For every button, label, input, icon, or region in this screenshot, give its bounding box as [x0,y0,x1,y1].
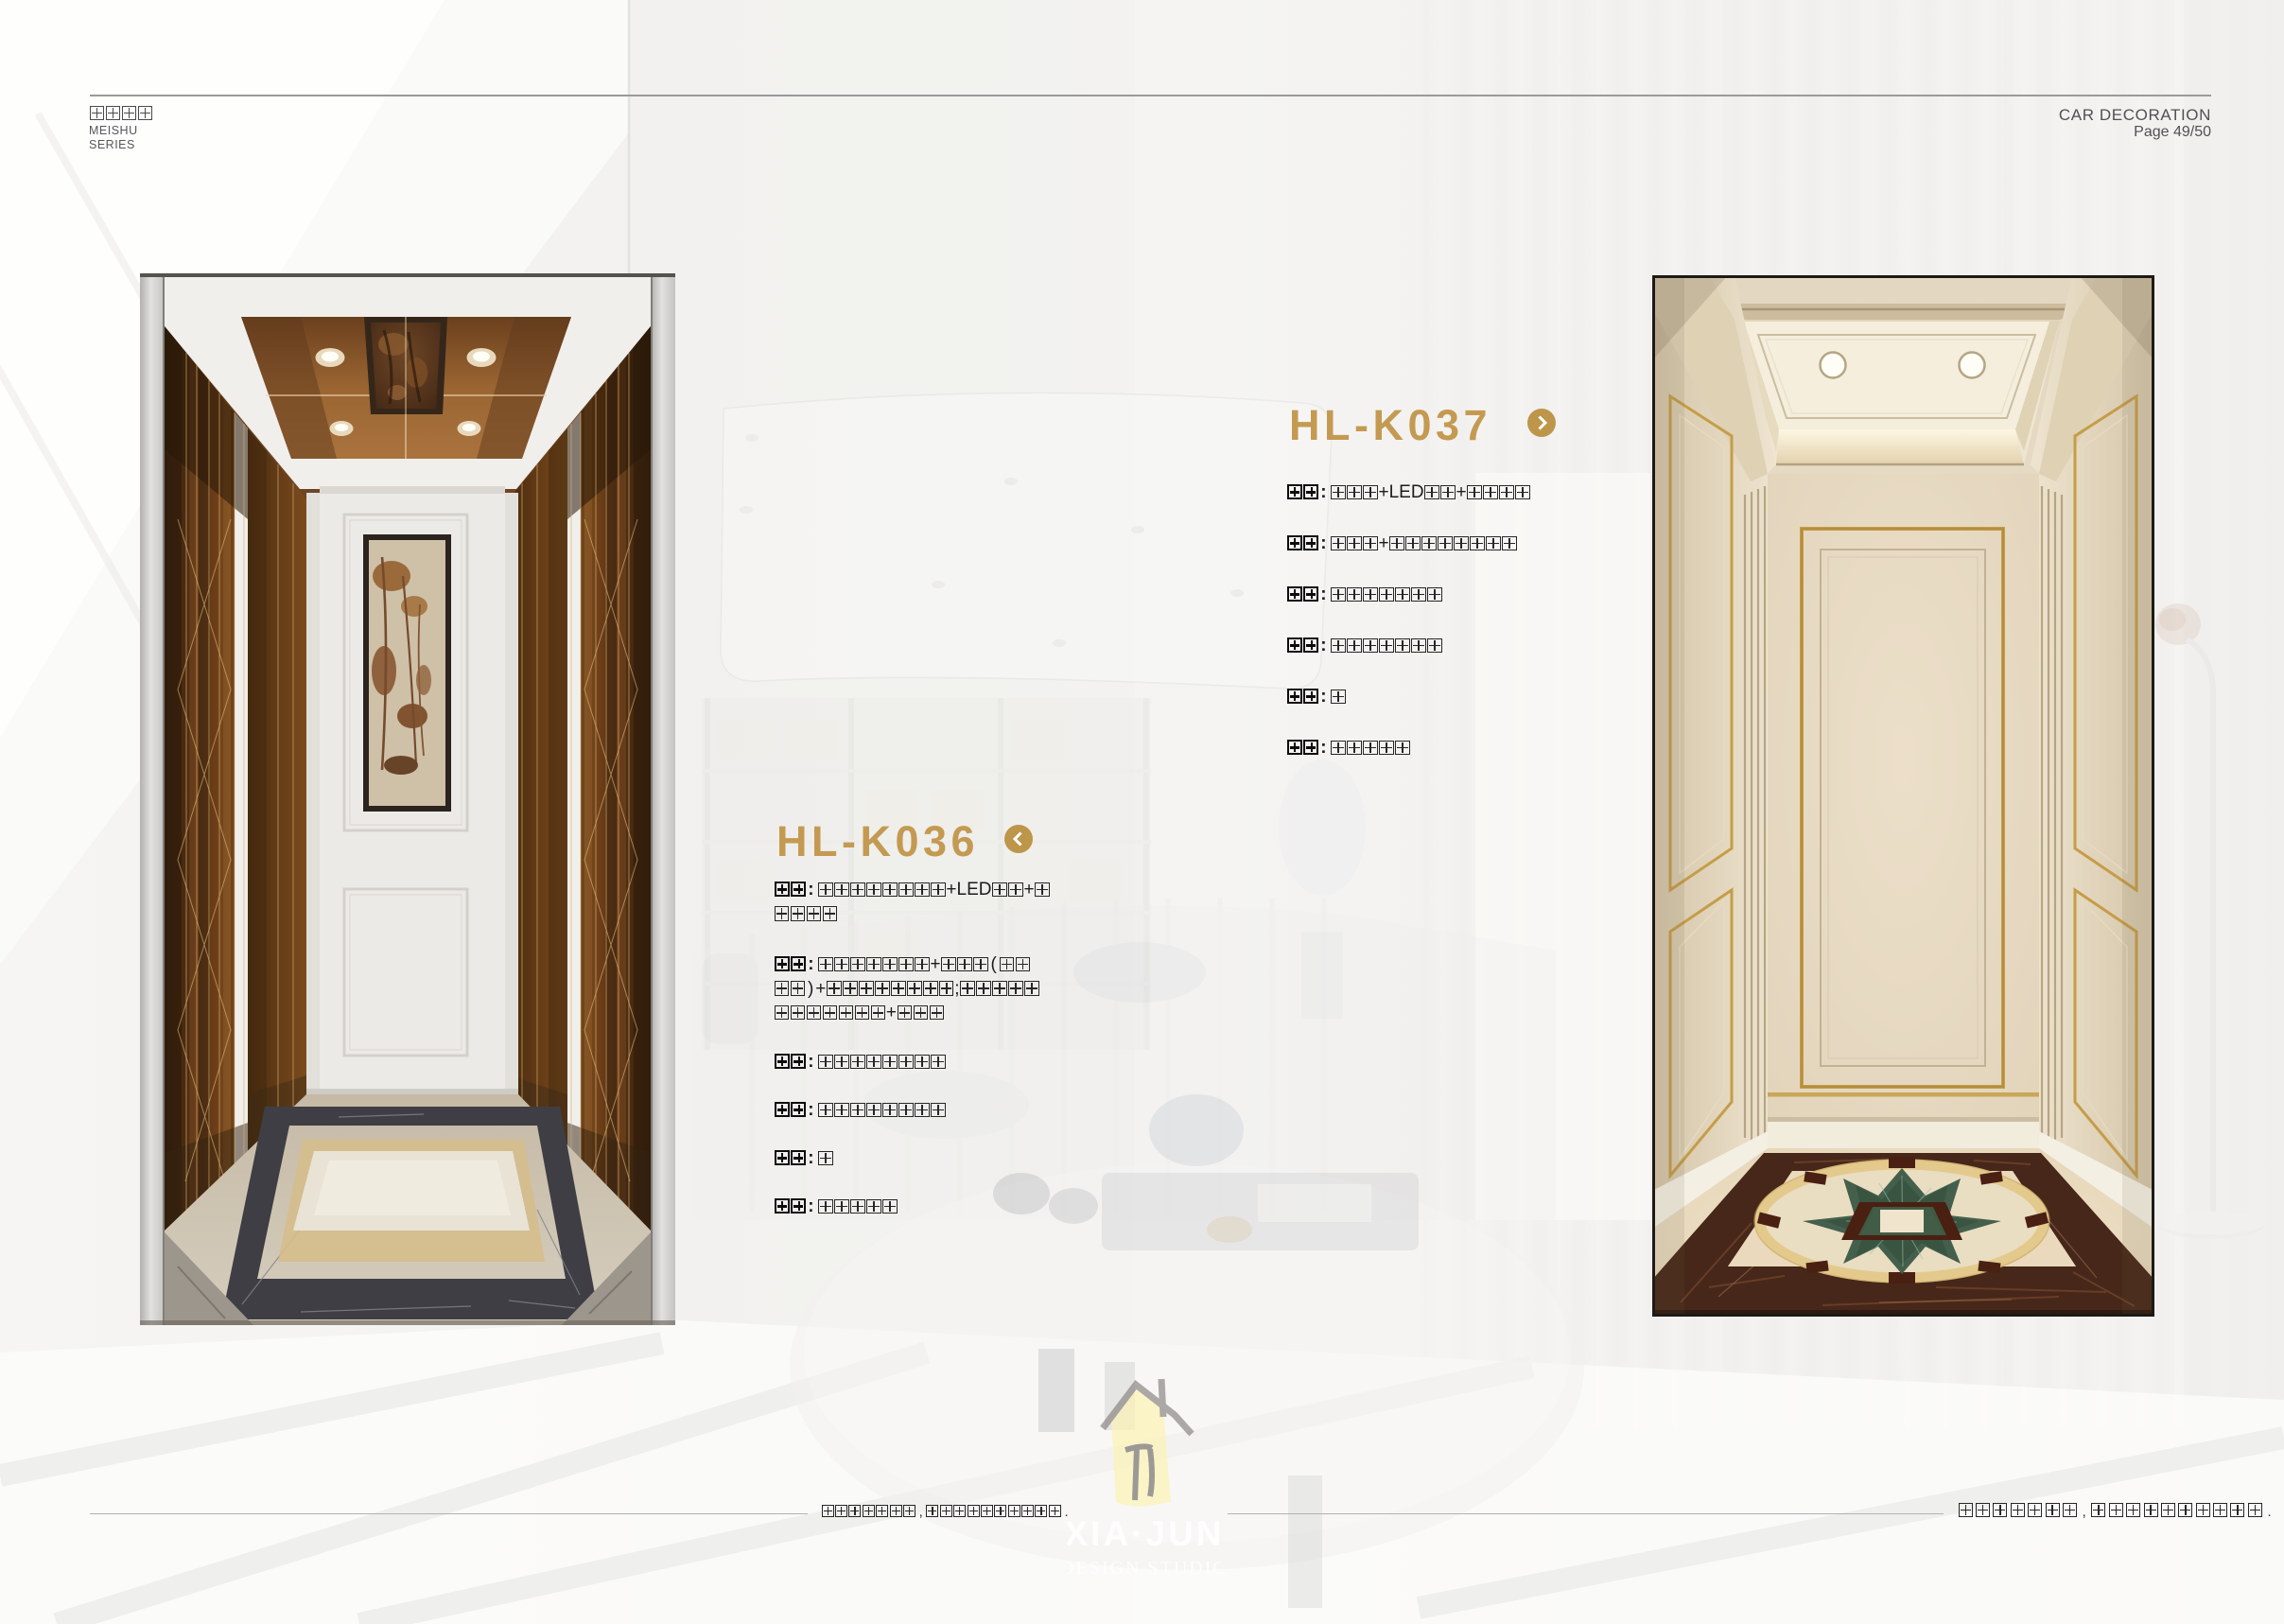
svg-text:XIA·JUN: XIA·JUN [1067,1514,1222,1553]
svg-text:DESIGN STUDIO: DESIGN STUDIO [1067,1558,1222,1579]
